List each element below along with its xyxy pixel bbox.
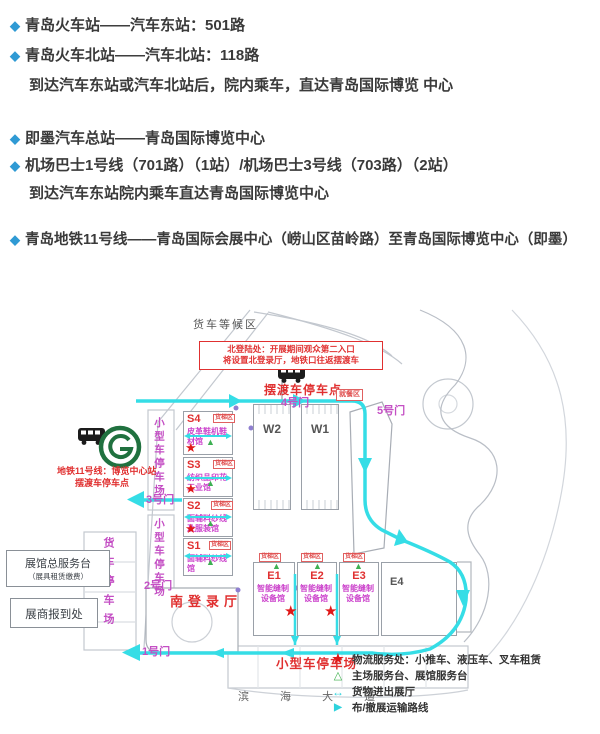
- service-center-box: 展馆总服务台 （展具租赁缴费）: [6, 550, 110, 587]
- legend-text: 物流服务处：小推车、液压车、叉车租赁: [352, 652, 541, 667]
- transport-line: ◆即墨汽车总站——青岛国际博览中心: [10, 127, 265, 148]
- legend-item-logistics: ★ 物流服务处：小推车、液压车、叉车租赁: [330, 651, 541, 667]
- service-center-line2: （展具租赁缴费）: [9, 571, 107, 582]
- transport-text: 到达汽车东站或汽车北站后，院内乘车，直达青岛国际博览 中心: [29, 77, 453, 94]
- transport-line: ◆青岛地铁11号线——青岛国际会展中心（崂山区苗岭路）至青岛国际博览中心（即墨）: [10, 228, 577, 249]
- legend-item-service-desk: △ 主场服务台、展馆服务台: [330, 668, 468, 683]
- hall-w1: W1: [301, 404, 339, 510]
- roundabout: [423, 379, 473, 429]
- registration-label: 展商报到处: [25, 609, 83, 621]
- transport-line: ◆机场巴士1号线（701路）（1站）/机场巴士3号线（703路）（2站）: [10, 154, 458, 175]
- hall-name: 智能缝制设备馆: [298, 582, 336, 605]
- transport-text: 青岛火车北站——汽车北站：118路: [25, 47, 259, 64]
- hall-id: W2: [254, 421, 290, 435]
- gate-1-label: 1号门: [142, 643, 170, 659]
- north-note-line1: 北登陆处：开展期间观众第二入口: [203, 344, 379, 355]
- service-desk-triangle-icon: ▲: [206, 558, 215, 567]
- truck-waiting-area-label: 货车等候区: [193, 316, 258, 332]
- legend-inout-arrow-icon: ↔: [330, 685, 346, 699]
- bullet-diamond-icon: ◆: [10, 158, 20, 173]
- service-desk-triangle-icon: ▲: [313, 562, 322, 571]
- bullet-diamond-icon: ◆: [10, 131, 20, 146]
- freight-elevator-label: 货梯区: [215, 415, 233, 421]
- bullet-diamond-icon: ◆: [10, 232, 20, 247]
- logistics-star-icon: ★: [324, 604, 337, 619]
- freight-elevator-box: 货梯区: [211, 501, 233, 510]
- hall-id: E4: [382, 575, 456, 588]
- transport-line: 到达汽车东站院内乘车直达青岛国际博览中心: [29, 182, 329, 203]
- freight-elevator-box: 货梯区: [213, 414, 235, 423]
- transport-text: 机场巴士1号线（701路）（1站）/机场巴士3号线（703路）（2站）: [25, 157, 458, 174]
- service-desk-triangle-icon: ▲: [206, 479, 215, 488]
- registration-box: 展商报到处: [10, 598, 98, 628]
- dining-area-box: 就餐区: [336, 389, 363, 401]
- transport-line: ◆青岛火车北站——汽车北站：118路: [10, 44, 259, 65]
- e4-annex: [457, 562, 471, 632]
- dining-area-label: 就餐区: [339, 391, 360, 398]
- brochure-page: ◆青岛火车站——汽车东站：501路 ◆青岛火车北站——汽车北站：118路 到达汽…: [0, 0, 600, 734]
- hall-id: W1: [302, 421, 338, 435]
- logistics-star-icon: ★: [185, 441, 197, 454]
- freight-elevator-label: 货梯区: [213, 502, 231, 508]
- legend-route-arrow-icon: ▶: [330, 702, 346, 713]
- freight-elevator-label: 货梯区: [303, 554, 321, 560]
- gate-4-label: 4号门: [281, 394, 309, 410]
- metro-shuttle-label: 摆渡车停车点: [75, 476, 129, 489]
- bullet-diamond-icon: ◆: [10, 48, 20, 63]
- legend-triangle-icon: △: [330, 669, 346, 682]
- freight-elevator-label: 货梯区: [211, 542, 229, 548]
- legend-text: 布/撤展运输路线: [352, 700, 428, 715]
- small-parking-label-top: 小型车停车场: [152, 417, 167, 498]
- transport-text: 青岛地铁11号线——青岛国际会展中心（崂山区苗岭路）至青岛国际博览中心（即墨）: [25, 232, 577, 248]
- freight-elevator-box: 货梯区: [209, 541, 231, 550]
- hall-w2: W2: [253, 404, 291, 510]
- hall-name: 智能缝制设备馆: [254, 582, 294, 605]
- legend-star-icon: ★: [330, 651, 346, 667]
- hall-e2: E2 智能缝制设备馆: [297, 562, 337, 636]
- qingdao-metro-logo-icon: [101, 428, 139, 466]
- hall-e4: E4: [381, 562, 457, 636]
- central-corridor: [350, 402, 392, 554]
- gate-5-label: 5号门: [377, 402, 405, 418]
- service-desk-triangle-icon: ▲: [354, 562, 363, 571]
- transport-line: 到达汽车东站或汽车北站后，院内乘车，直达青岛国际博览 中心: [29, 74, 453, 95]
- bullet-diamond-icon: ◆: [10, 18, 20, 33]
- north-note-line2: 将设置北登录厅，地铁口往返摆渡车: [203, 355, 379, 366]
- service-desk-triangle-icon: ▲: [206, 438, 215, 447]
- hall-e3: E3 智能缝制设备馆: [339, 562, 379, 636]
- hall-name: 智能缝制设备馆: [340, 582, 378, 605]
- freight-elevator-label: 货梯区: [345, 554, 363, 560]
- transport-text: 即墨汽车总站——青岛国际博览中心: [25, 130, 265, 147]
- freight-elevator-label: 货梯区: [261, 554, 279, 560]
- transport-text: 到达汽车东站院内乘车直达青岛国际博览中心: [29, 185, 329, 202]
- legend-text: 货物进出展厅: [352, 684, 415, 699]
- freight-elevator-label: 货梯区: [215, 461, 233, 467]
- outer-boundary: [482, 310, 566, 662]
- legend-text: 主场服务台、展馆服务台: [352, 668, 468, 683]
- logistics-star-icon: ★: [284, 604, 297, 619]
- hall-e1: E1 智能缝制设备馆: [253, 562, 295, 636]
- freight-elevator-box: 货梯区: [213, 460, 235, 469]
- north-entrance-note: 北登陆处：开展期间观众第二入口 将设置北登录厅，地铁口往返摆渡车: [199, 341, 383, 370]
- transport-text: 青岛火车站——汽车东站：501路: [25, 17, 245, 34]
- legend-item-goods-inout: ↔ 货物进出展厅: [330, 684, 415, 699]
- logistics-star-icon: ★: [185, 522, 197, 535]
- logistics-star-icon: ★: [185, 482, 197, 495]
- service-center-line1: 展馆总服务台: [9, 555, 107, 571]
- small-parking-label-mid: 小型车停车场: [152, 518, 167, 599]
- service-desk-triangle-icon: ▲: [272, 562, 281, 571]
- service-desk-triangle-icon: ▲: [206, 519, 215, 528]
- transport-line: ◆青岛火车站——汽车东站：501路: [10, 14, 245, 35]
- south-hall-label: 南登录厅: [170, 591, 242, 610]
- legend-item-transport-route: ▶ 布/撤展运输路线: [330, 700, 428, 715]
